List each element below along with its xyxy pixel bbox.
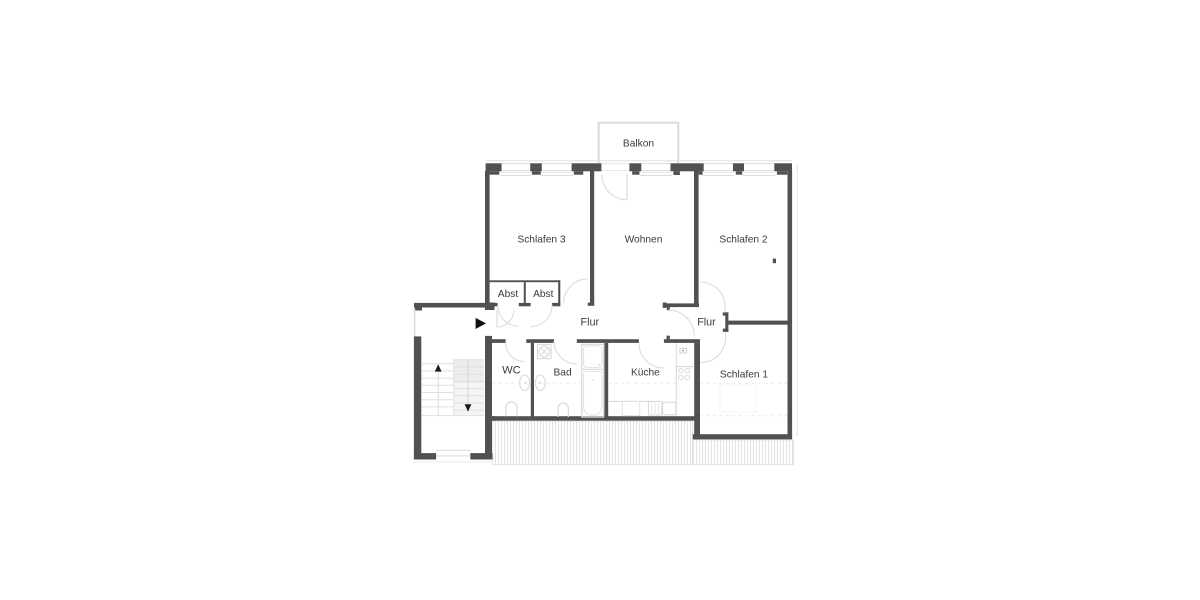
svg-text:Balkon: Balkon [623,139,654,150]
svg-text:Schlafen 2: Schlafen 2 [719,234,767,245]
svg-text:Schlafen 1: Schlafen 1 [720,370,768,381]
svg-text:Küche: Küche [631,368,660,379]
svg-text:WC: WC [502,364,521,376]
svg-text:Schlafen 3: Schlafen 3 [517,234,565,245]
svg-text:Wohnen: Wohnen [625,234,663,245]
svg-text:Flur: Flur [697,316,716,328]
svg-text:Abst: Abst [533,289,554,300]
svg-text:Bad: Bad [554,368,572,379]
svg-text:Abst: Abst [498,289,519,300]
svg-text:Flur: Flur [580,316,599,328]
